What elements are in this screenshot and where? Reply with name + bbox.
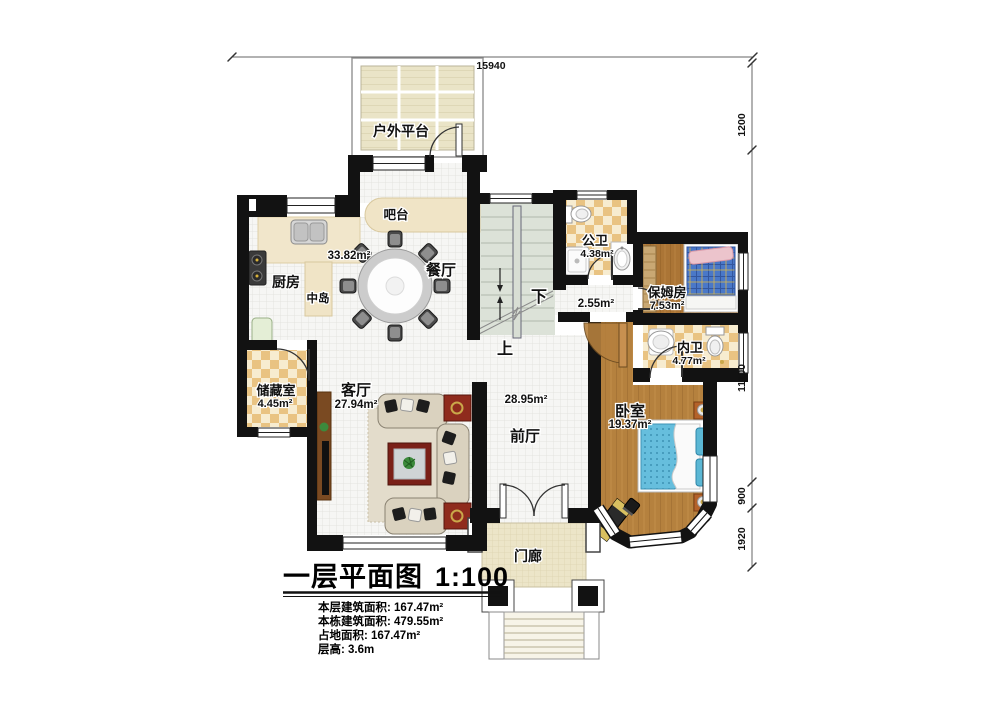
steps-rail-right (584, 612, 599, 659)
floor-drain (720, 360, 724, 364)
inner-toilet-seat (710, 340, 720, 354)
label-stairs-up: 上 (497, 340, 513, 358)
label-bedroom: 卧室 (615, 402, 645, 420)
label-porch: 门廊 (514, 548, 542, 564)
table-center (386, 277, 404, 295)
label-front-hall: 前厅 (510, 427, 540, 445)
burner-dot (256, 259, 259, 262)
toilet-seat (576, 209, 588, 219)
label-island: 中岛 (307, 291, 330, 305)
label-bar: 吧台 (383, 207, 408, 222)
label-inner-bath: 内卫 (677, 340, 703, 355)
plan-scale: 1:100 (435, 562, 509, 592)
sofa-right-pillows (441, 430, 457, 485)
side-table-top (444, 395, 471, 421)
steps-rail-left (489, 612, 504, 659)
sofa-bottom-pillows (392, 507, 437, 522)
inner-toilet-tank (706, 327, 724, 335)
area-storage: 4.45m² (258, 398, 293, 410)
plan-title: 一层平面图1:100 (283, 562, 509, 592)
side-table-bottom (444, 503, 471, 529)
label-outdoor-platform: 户外平台 (373, 123, 429, 139)
plan-title-text: 一层平面图 (283, 562, 423, 592)
porch-column-right (578, 586, 598, 606)
area-inner-bath: 4.77m² (672, 355, 706, 367)
label-stairs-down: 下 (531, 289, 547, 306)
area-living: 27.94m² (335, 399, 378, 411)
outdoor-platform (352, 58, 483, 157)
island-counter (305, 262, 332, 316)
tv (322, 441, 329, 495)
floor-plan-svg: 户外平台 吧台 33.82m² 厨房 中岛 餐厅 公卫 4.38m² 2.55m… (0, 0, 1000, 706)
sink-basin-right (310, 223, 324, 241)
porch-pilaster-right (586, 518, 600, 552)
label-storage: 储藏室 (255, 383, 295, 398)
area-nook: 2.55m² (578, 298, 615, 310)
legend-line-1: 本层建筑面积: 167.47m² (318, 600, 443, 614)
legend-block: 一层平面图1:100 本层建筑面积: 167.47m² 本栋建筑面积: 479.… (283, 562, 509, 656)
table-plant (403, 457, 415, 469)
label-nanny: 保姆房 (646, 285, 686, 300)
legend-line-2: 本栋建筑面积: 479.55m² (318, 614, 443, 628)
area-front-hall: 28.95m² (505, 394, 548, 406)
sink-basin-left (294, 223, 308, 241)
label-living: 客厅 (340, 381, 371, 399)
area-nanny: 7.53m² (650, 300, 685, 312)
burner-dot (256, 275, 259, 278)
dim-right-1200: 1200 (736, 113, 748, 137)
dim-top-value: 15940 (476, 60, 505, 72)
label-public-bath: 公卫 (582, 233, 608, 248)
vanity-basin-inner (617, 251, 627, 267)
legend-line-3: 占地面积: 167.47m² (318, 628, 420, 642)
label-kitchen: 厨房 (272, 274, 300, 290)
floor-plan-canvas: 户外平台 吧台 33.82m² 厨房 中岛 餐厅 公卫 4.38m² 2.55m… (0, 0, 1000, 706)
area-bedroom: 19.37m² (609, 419, 652, 431)
nanny-bed-blanket (686, 296, 736, 309)
sofa-top-pillows (384, 398, 430, 413)
area-open-space: 33.82m² (328, 250, 371, 262)
dim-right-1920: 1920 (736, 527, 748, 551)
dim-right-900: 900 (736, 487, 748, 505)
vanity-faucet (621, 247, 624, 250)
label-dining: 餐厅 (426, 261, 456, 279)
inner-bath-sink-inner (653, 335, 669, 349)
bar-counter (365, 198, 480, 232)
dim-right-11100: 11100 (736, 364, 748, 392)
dining-table (340, 231, 450, 341)
shower-drain (575, 259, 580, 264)
cabinet-plant (320, 423, 329, 432)
legend-line-4: 层高: 3.6m (317, 642, 374, 656)
area-public-bath: 4.38m² (580, 248, 614, 260)
